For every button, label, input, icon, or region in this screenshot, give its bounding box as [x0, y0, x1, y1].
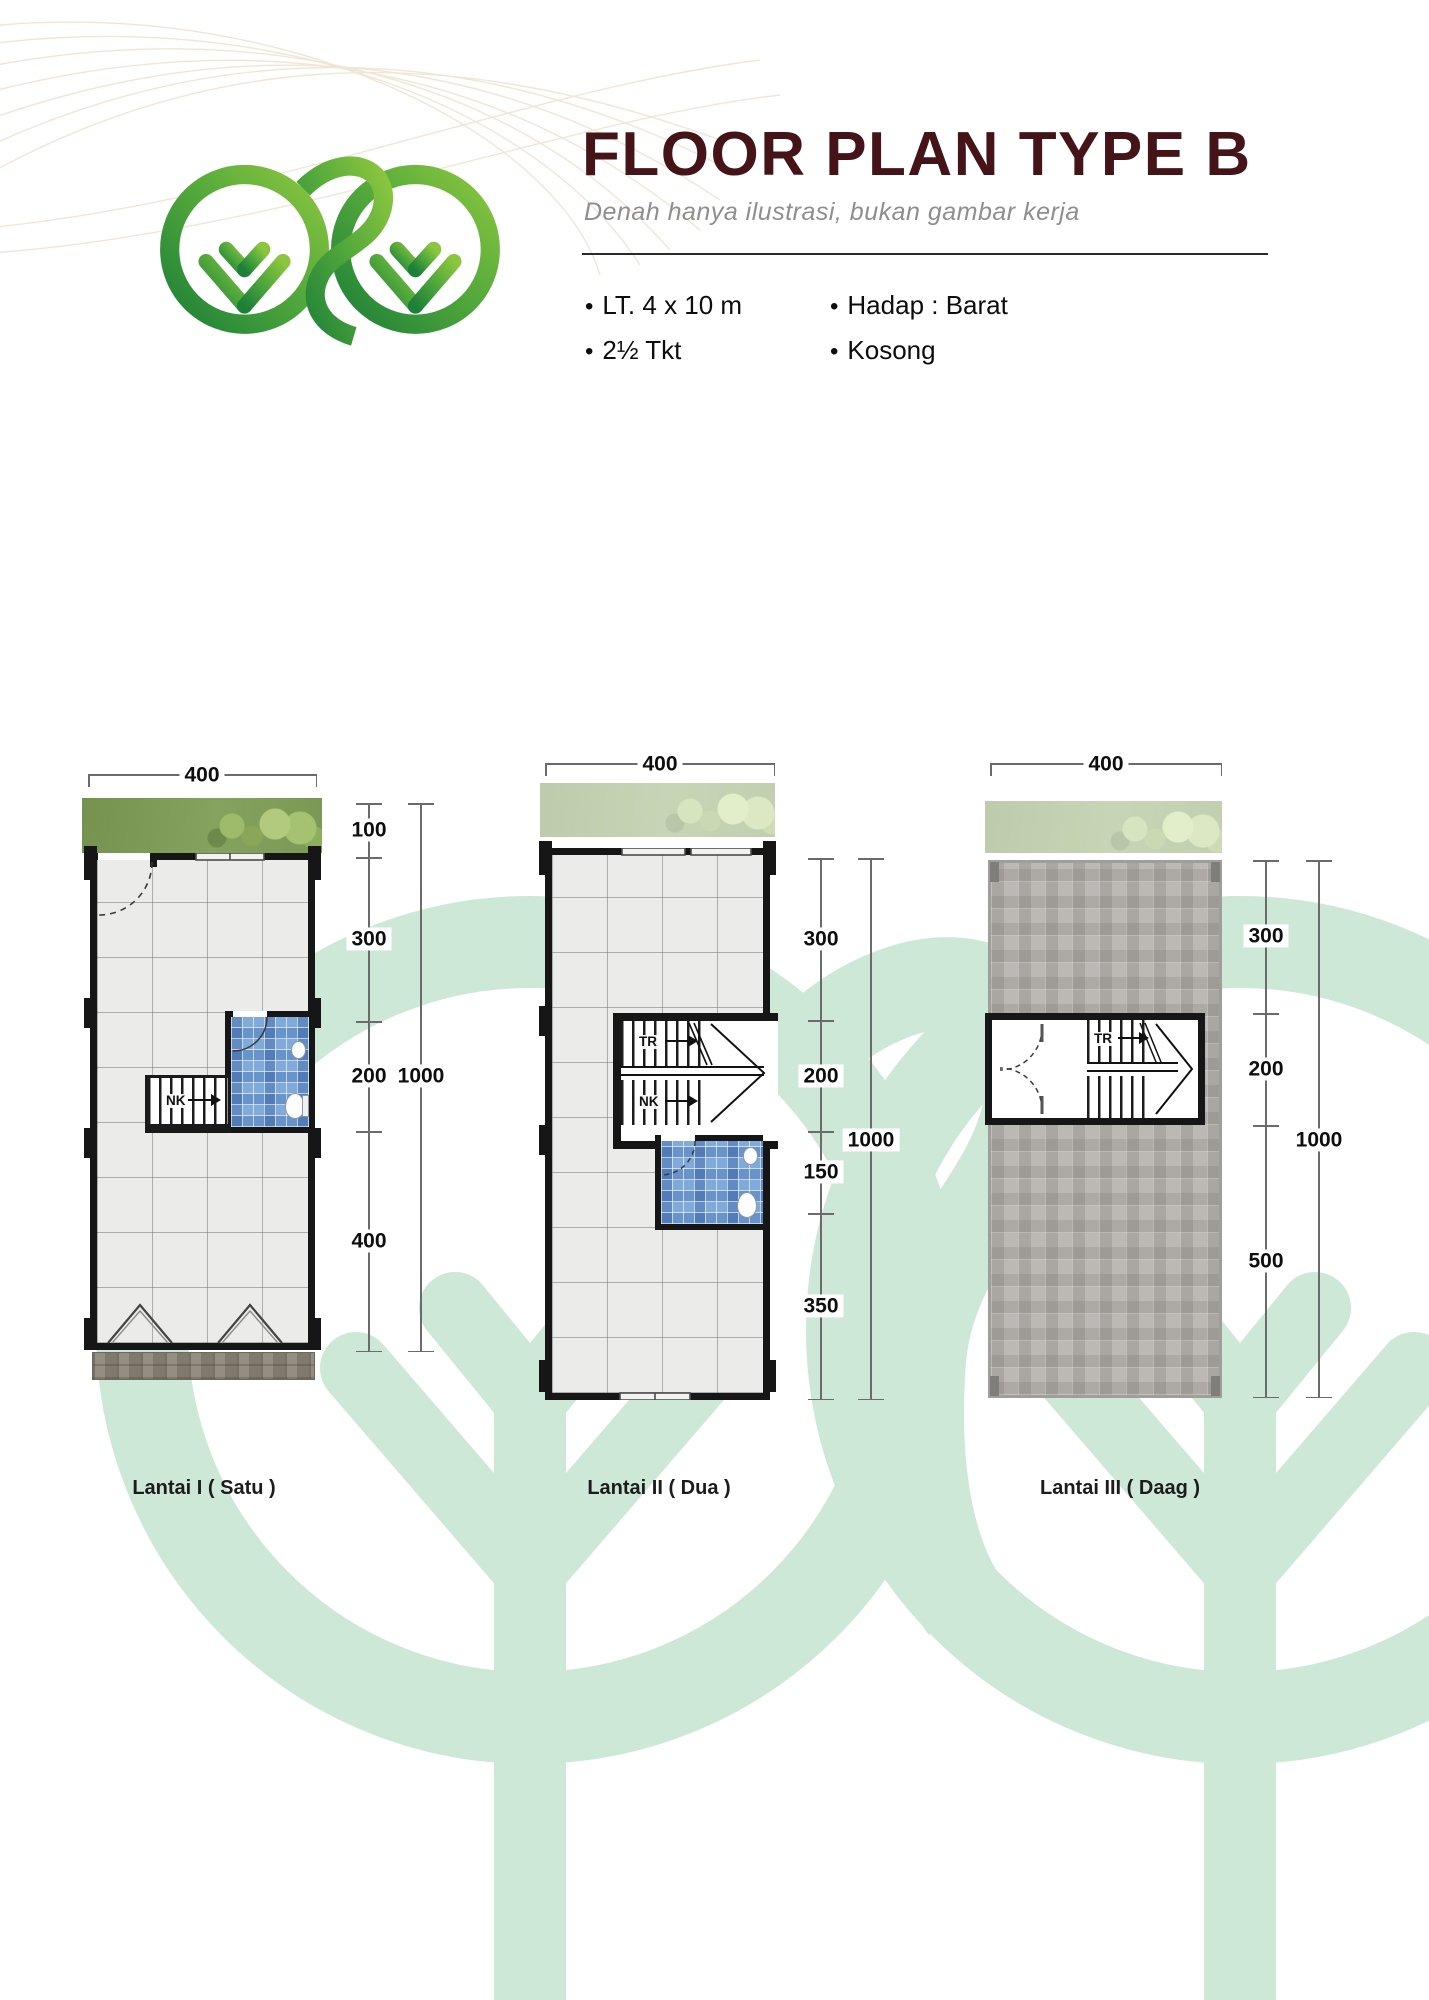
dim-segment-label: 300 [1243, 924, 1288, 947]
folding-door-icon [108, 1305, 282, 1343]
dim-tick [1253, 860, 1279, 862]
stairs-arrow-icon [188, 1099, 212, 1101]
bathroom-floor2 [655, 1135, 763, 1230]
dim-tick [858, 858, 884, 860]
bathroom-door-opening [233, 1011, 267, 1017]
bullet-icon: • [830, 293, 838, 320]
dim-segment-label: 200 [1243, 1057, 1288, 1080]
stairs-arrow-icon [665, 1100, 689, 1102]
bathroom-door-opening [661, 1135, 695, 1141]
bathroom-door-arc [661, 1141, 695, 1175]
dim-tick [356, 1021, 382, 1023]
dim-tick [88, 774, 90, 787]
dim-segment-label: 300 [798, 927, 843, 950]
window [622, 848, 685, 855]
stair-divider-rail [1087, 1062, 1178, 1072]
dim-segment-label: 200 [798, 1064, 843, 1087]
floor-plan-lantai-3: 400 TR [965, 748, 1429, 1528]
plan-caption-lantai-2: Lantai II ( Dua ) [499, 1477, 819, 1500]
floor-plan-lantai-2: 400 TR NK [520, 748, 990, 1528]
dim-total-label: 1000 [1291, 1128, 1348, 1151]
bullet-icon: • [585, 338, 593, 365]
stairs-enclosure-roof: TR [985, 1013, 1205, 1125]
dim-width-label: 400 [1083, 752, 1128, 775]
dim-tick [1253, 1397, 1279, 1399]
plan-caption-lantai-3: Lantai III ( Daag ) [960, 1477, 1280, 1500]
page-subtitle: Denah hanya ilustrasi, bukan gambar kerj… [584, 198, 1080, 227]
dim-tick [858, 1399, 884, 1401]
stairs-direction-label: TR [1092, 1032, 1114, 1046]
dim-segment-label: 350 [798, 1294, 843, 1317]
door-swing-arc [99, 862, 152, 915]
dim-tick [808, 858, 834, 860]
dim-tick [808, 1213, 834, 1215]
dim-tick [808, 1020, 834, 1022]
dim-tick [808, 1131, 834, 1133]
dim-width-label: 400 [179, 763, 224, 786]
roof-edge-column [990, 862, 999, 882]
page-title: FLOOR PLAN TYPE B [582, 122, 1252, 187]
dim-segment-label: 200 [346, 1064, 391, 1087]
stairs-direction-label: TR [637, 1035, 659, 1049]
dim-tick [774, 763, 776, 776]
plan-caption-lantai-1: Lantai I ( Satu ) [44, 1477, 364, 1500]
dim-width-label: 400 [637, 752, 682, 775]
carport-paving [92, 1352, 315, 1380]
dim-tick [408, 1351, 434, 1353]
spec-condition: •Kosong [830, 335, 936, 366]
dim-segment-label: 300 [346, 927, 391, 950]
stairs-direction-label: NK [637, 1095, 661, 1109]
dim-segment-label: 150 [798, 1160, 843, 1183]
stair-landing-lines [711, 1024, 764, 1122]
stairs-arrow-icon [1118, 1037, 1140, 1039]
stairs-arrow-icon [665, 1040, 689, 1042]
spec-facing: •Hadap : Barat [830, 290, 1008, 321]
dim-tick [316, 774, 318, 787]
dim-tick [408, 803, 434, 805]
spec-land-size: •LT. 4 x 10 m [585, 290, 742, 321]
dim-tick [1306, 1397, 1332, 1399]
brand-logo-trees-icon [155, 128, 505, 393]
stairs-floor2: TR NK [613, 1013, 778, 1149]
window [691, 848, 751, 855]
bullet-icon: • [830, 338, 838, 365]
dim-tick [356, 1351, 382, 1353]
dim-tick [356, 1131, 382, 1133]
bathroom-floor1 [225, 1011, 315, 1133]
dim-total-label: 1000 [393, 1064, 450, 1087]
stairs-floor1: NK [145, 1075, 231, 1133]
door-opening [98, 853, 152, 860]
header-divider [582, 253, 1268, 255]
dim-tick [356, 857, 382, 859]
bathroom-door-arc [233, 1017, 267, 1051]
door-swing-arc [1000, 1028, 1042, 1070]
dim-tick [808, 1399, 834, 1401]
dim-tick [1221, 763, 1223, 776]
dim-segment-label: 100 [346, 818, 391, 841]
roof-deck [988, 860, 1222, 1398]
roof-edge-column [1211, 862, 1220, 882]
dim-segment-label: 400 [346, 1229, 391, 1252]
floor-plan-lantai-1: 400 [60, 748, 530, 1528]
dim-tick [1253, 1013, 1279, 1015]
dim-tick [1253, 1125, 1279, 1127]
stair-flight-down [1087, 1076, 1153, 1118]
dim-tick [545, 763, 547, 776]
spec-storeys: •2½ Tkt [585, 335, 681, 366]
dim-total-label: 1000 [843, 1128, 900, 1151]
dim-tick [1306, 860, 1332, 862]
dim-tick [990, 763, 992, 776]
front-garden-grass [82, 798, 322, 853]
roof-edge-column [990, 1376, 999, 1396]
dim-segment-label: 500 [1243, 1249, 1288, 1272]
garden-grass-below [540, 783, 775, 837]
dim-tick [356, 803, 382, 805]
door-swing-arc [1000, 1068, 1042, 1110]
stairs-direction-label: NK [164, 1094, 188, 1108]
roof-edge-column [1211, 1376, 1220, 1396]
garden-grass-below [985, 801, 1222, 853]
floor-plan-poster: FLOOR PLAN TYPE B Denah hanya ilustrasi,… [0, 0, 1429, 2000]
bullet-icon: • [585, 293, 593, 320]
